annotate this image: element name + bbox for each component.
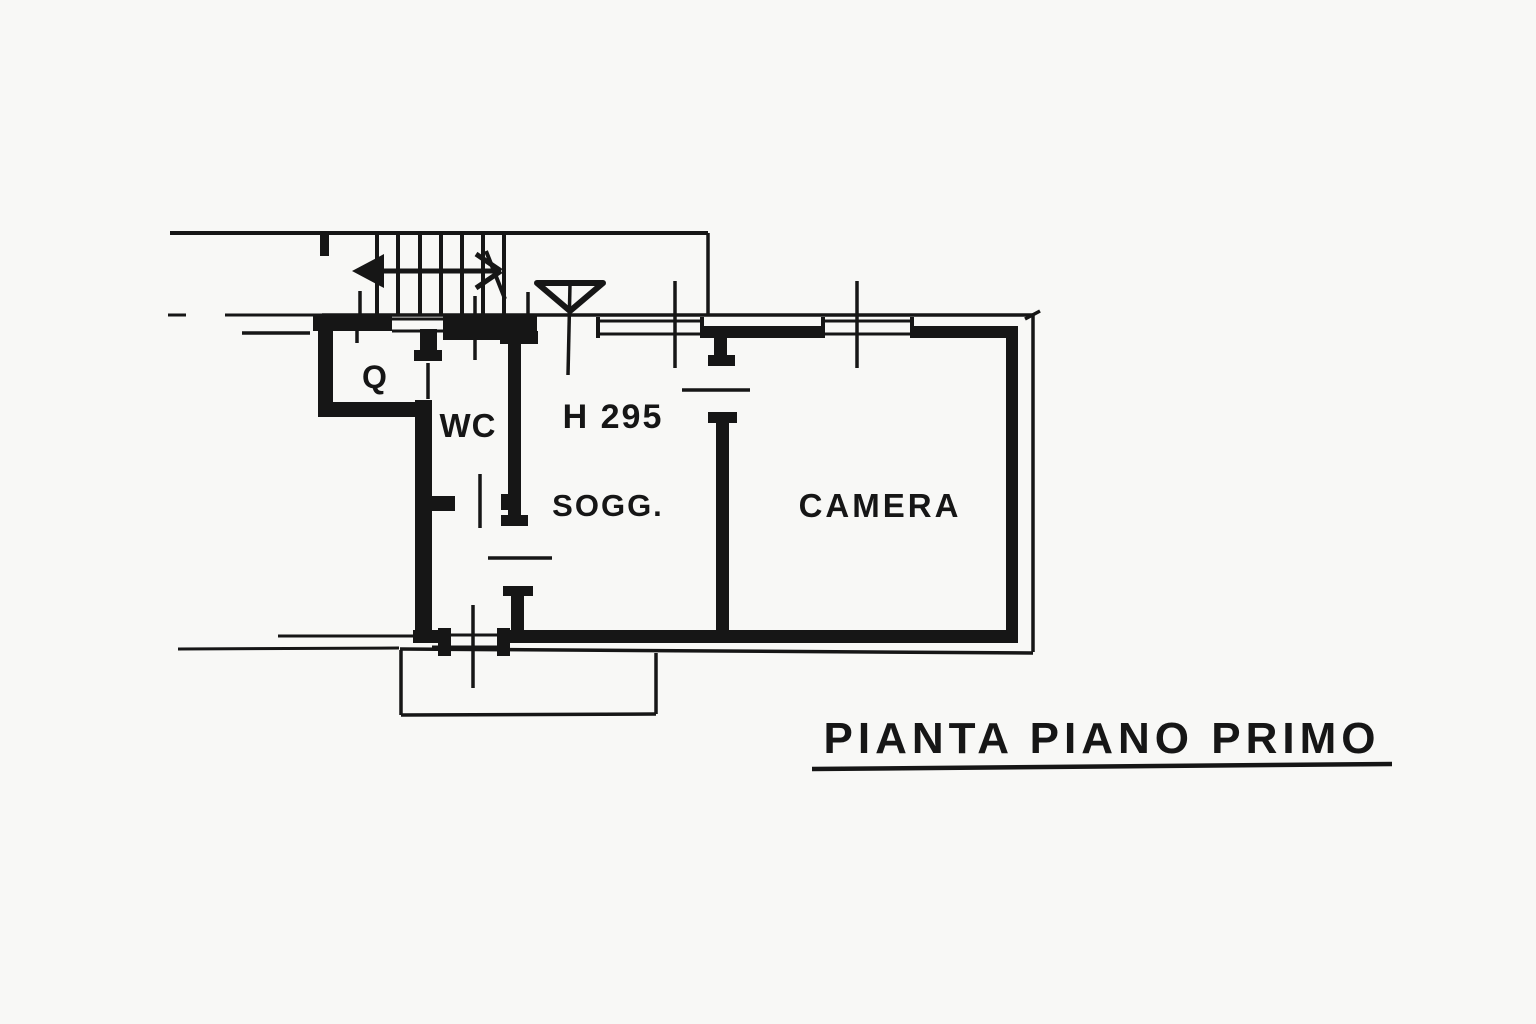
room-label-wc: WC: [440, 407, 497, 444]
window-south: [432, 605, 510, 688]
entrance-triangle-icon: [537, 283, 603, 375]
balcony-outline: [401, 650, 656, 715]
drawing-title: PIANTA PIANO PRIMO: [824, 714, 1381, 763]
floor-plan-page: Q WC H 295 SOGG. CAMERA PIANTA PIANO PRI…: [0, 0, 1536, 1024]
sogg-south-jamb: [488, 558, 552, 632]
sogg-camera-partition: [682, 338, 750, 633]
drawing-title-block: PIANTA PIANO PRIMO: [812, 714, 1392, 769]
staircase: [170, 233, 708, 315]
window-sogg: [598, 281, 702, 368]
room-label-q: Q: [362, 359, 388, 395]
title-underline: [812, 764, 1392, 769]
room-label-sogg: SOGG.: [552, 488, 664, 523]
window-camera: [823, 281, 912, 368]
floor-plan-canvas: Q WC H 295 SOGG. CAMERA PIANTA PIANO PRI…: [0, 0, 1536, 1024]
ceiling-height-annotation: H 295: [563, 398, 664, 436]
room-label-camera: CAMERA: [799, 487, 962, 524]
